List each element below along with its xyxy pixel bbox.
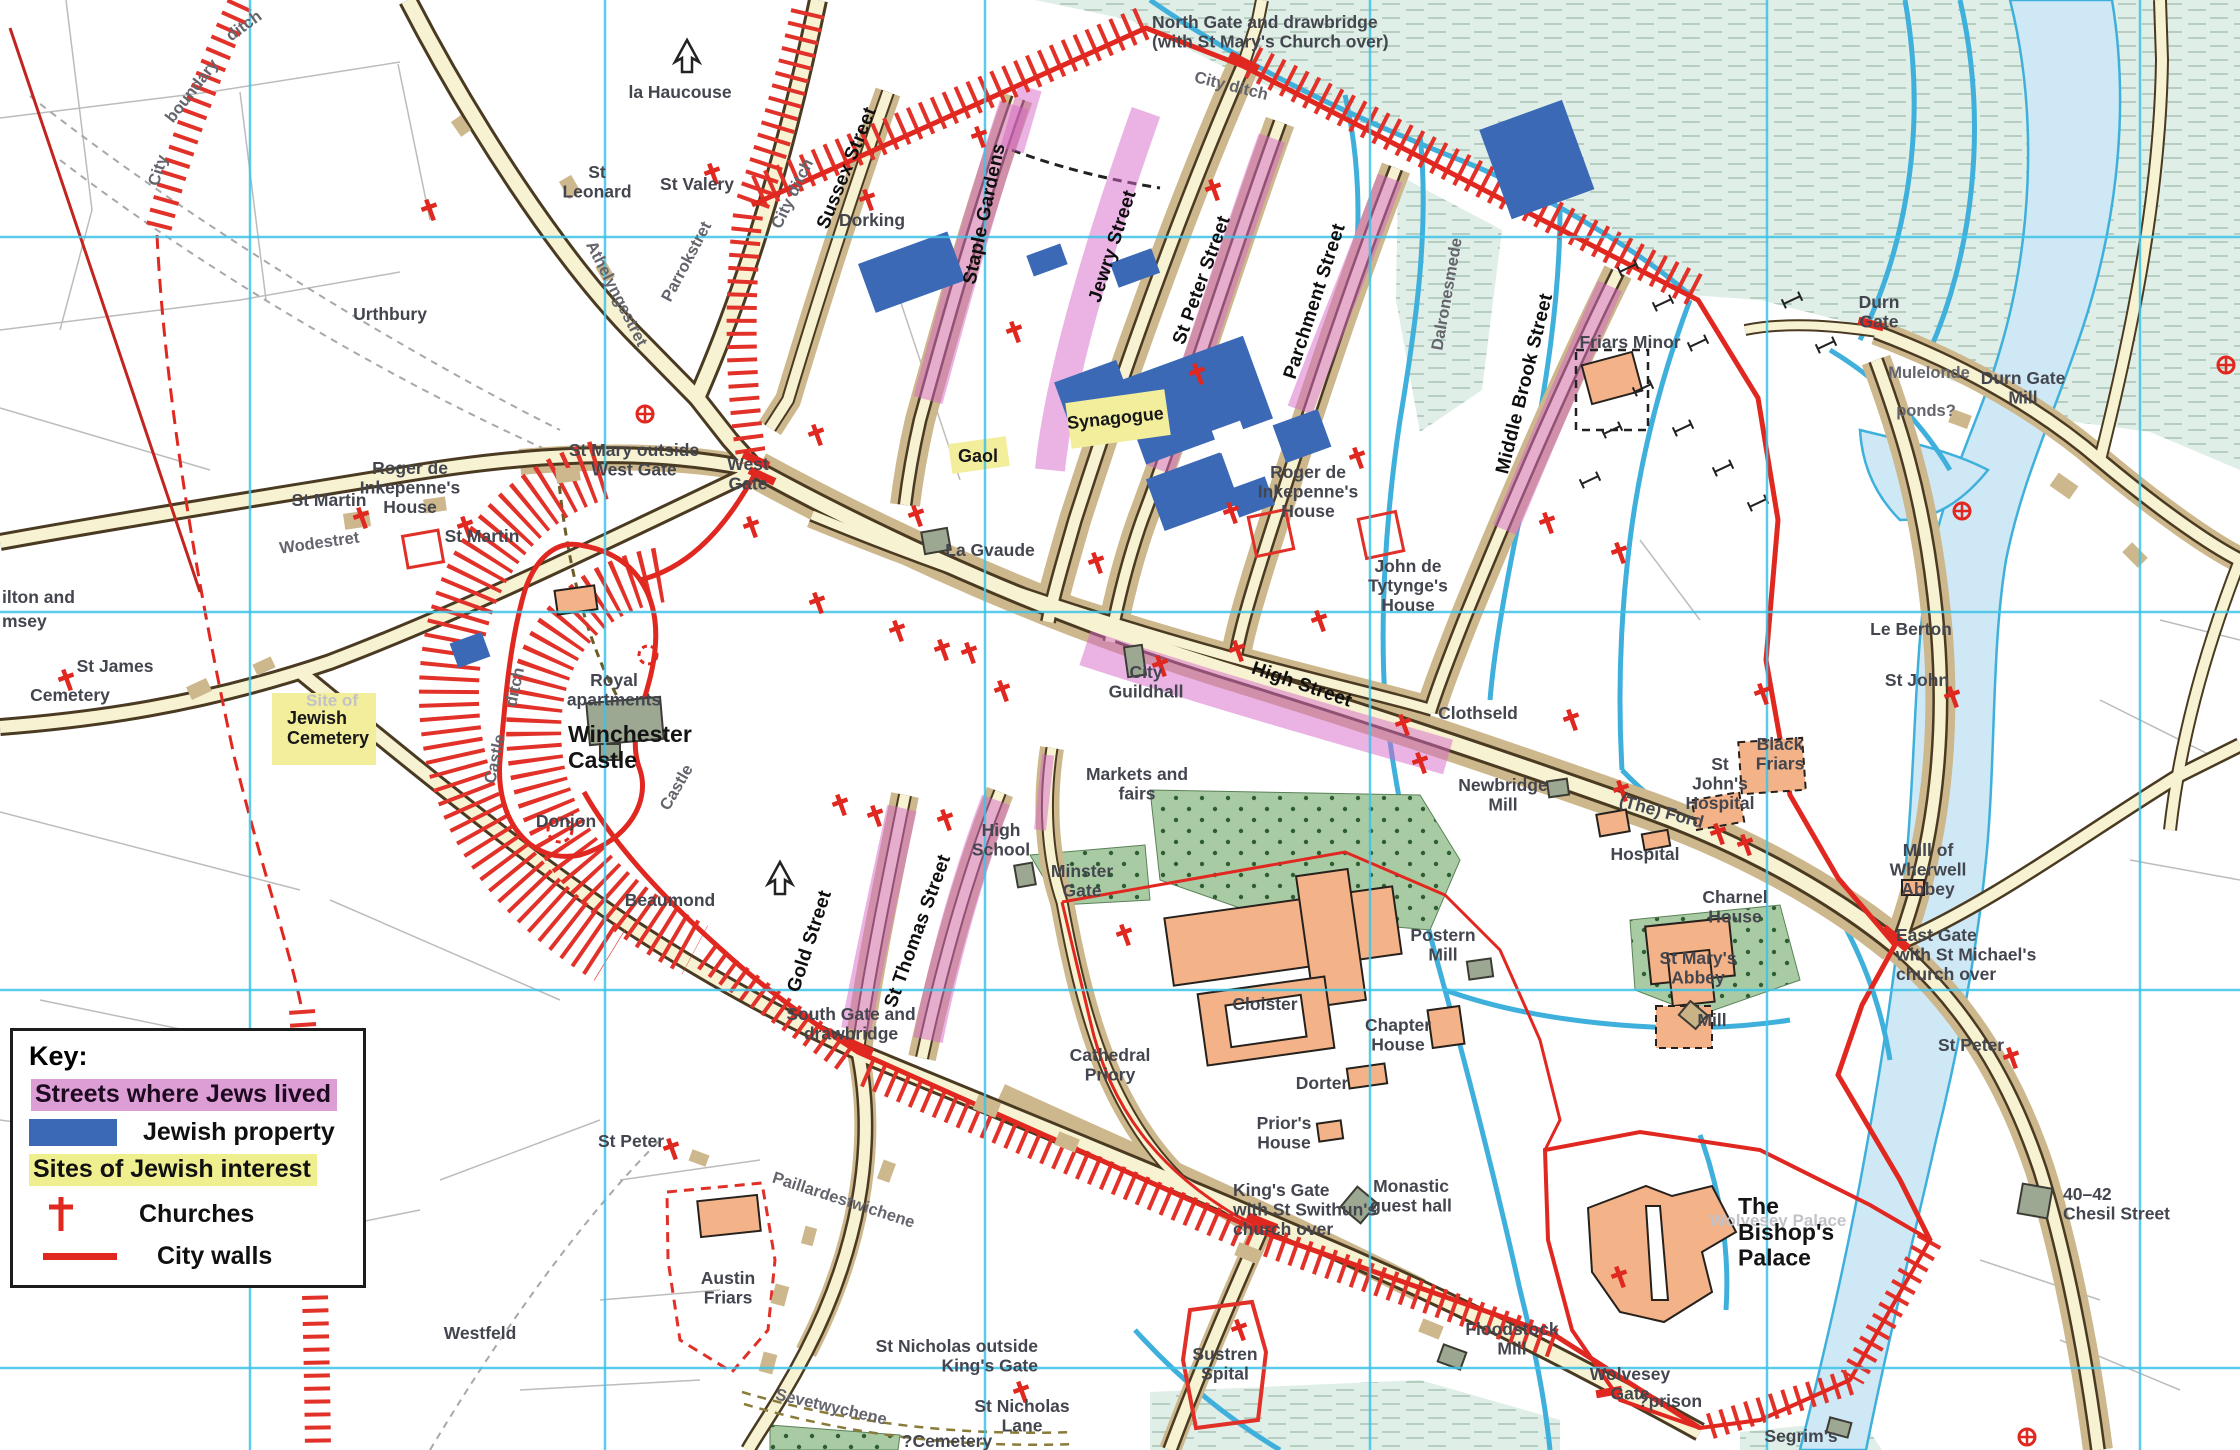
monument-icon xyxy=(768,862,792,894)
map-label: Clothseld xyxy=(1438,703,1518,723)
map-label: Prior'sHouse xyxy=(1257,1113,1312,1153)
church-cross-icon xyxy=(1086,550,1109,576)
map-label: CathedralPriory xyxy=(1070,1045,1151,1085)
map-label: St John xyxy=(1885,670,1949,690)
key-title: Key: xyxy=(29,1041,349,1072)
map-label: AustinFriars xyxy=(701,1268,755,1308)
map-label: ChapterHouse xyxy=(1365,1015,1431,1055)
map-label: Parrokstret xyxy=(658,218,715,305)
map-label: Cemetery xyxy=(30,685,110,705)
map-label: StLeonard xyxy=(562,162,631,202)
map-label: ilton and xyxy=(2,587,75,607)
city-walls-swatch xyxy=(43,1253,117,1260)
church-cross-icon xyxy=(1114,922,1137,948)
map-label: St Peter xyxy=(598,1131,664,1151)
map-label: BlackFriars xyxy=(1756,734,1805,774)
map-label: Dorking xyxy=(839,210,905,230)
map-label: Westfeld xyxy=(444,1323,517,1343)
map-label: Wodestret xyxy=(278,528,361,557)
church-cross-icon xyxy=(1561,707,1584,733)
city-walls-label: City walls xyxy=(157,1242,272,1271)
map-label: Donjon xyxy=(536,811,596,831)
church-cross-icon xyxy=(992,678,1015,704)
map-label: Royalapartments xyxy=(567,670,662,710)
church-cross-icon xyxy=(806,422,829,448)
church-cross-icon xyxy=(661,1136,684,1162)
map-label: St Valery xyxy=(660,174,734,194)
map-label: St Peter xyxy=(1938,1035,2004,1055)
map-label: ditch xyxy=(502,666,528,708)
church-cross-icon xyxy=(41,1193,87,1235)
map-label: Dorter xyxy=(1296,1073,1349,1093)
map-label: Le Berton xyxy=(1870,619,1952,639)
map-label: ?prison xyxy=(1638,1391,1702,1411)
map-label: Mill xyxy=(1697,1010,1726,1030)
key-item-jews-streets: Streets where Jews lived xyxy=(29,1079,349,1111)
map-label: Hospital xyxy=(1610,844,1679,864)
map-label: Gold Street xyxy=(783,887,836,994)
church-circle-icon xyxy=(2218,357,2234,373)
map-label: CharnelHouse xyxy=(1702,887,1767,927)
jews-streets-swatch: Streets where Jews lived xyxy=(31,1079,337,1111)
key-item-city-walls: City walls xyxy=(29,1242,349,1271)
jewish-sites-swatch: Sites of Jewish interest xyxy=(29,1154,317,1186)
map-label: NewbridgeMill xyxy=(1458,775,1548,815)
church-circle-icon xyxy=(1954,503,1970,519)
map-label: St NicholasLane xyxy=(974,1396,1070,1436)
map-label: HighSchool xyxy=(972,820,1030,860)
monument-icon xyxy=(675,40,699,72)
church-cross-icon xyxy=(887,618,910,644)
key-item-jewish-sites: Sites of Jewish interest xyxy=(29,1154,349,1186)
map-label: la Haucouse xyxy=(628,82,731,102)
map-label: DurnGate xyxy=(1859,292,1900,332)
map-label: City xyxy=(145,152,172,188)
jewish-property-label: Jewish property xyxy=(143,1118,335,1147)
map-label: Friars Minor xyxy=(1579,332,1680,352)
jewish-property-swatch xyxy=(29,1119,117,1146)
map-label: msey xyxy=(2,611,47,631)
church-cross-icon xyxy=(959,640,982,666)
map-label: St Martin xyxy=(292,490,367,510)
church-cross-icon xyxy=(1347,445,1370,471)
church-circle-icon xyxy=(2019,1429,2035,1445)
jewish-sites-boxes xyxy=(272,389,1171,765)
map-label: Castle xyxy=(656,762,696,814)
map-key: Key: Streets where Jews lived Jewish pro… xyxy=(10,1028,366,1288)
map-label: Monasticguest hall xyxy=(1370,1176,1452,1216)
map-label: Mulelonde xyxy=(1888,364,1970,382)
map-label: Beaumond xyxy=(625,890,715,910)
map-label: boundary xyxy=(162,55,223,126)
church-cross-icon xyxy=(1537,510,1560,536)
map-label: South Gate anddrawbridge xyxy=(786,1004,915,1044)
map-label: St Nicholas outsideKing's Gate xyxy=(876,1336,1039,1376)
map-label: John deTytynge'sHouse xyxy=(1368,556,1448,615)
map-label: Castle xyxy=(481,733,509,785)
map-label: Segrim's xyxy=(1764,1426,1837,1446)
map-label: St Martin xyxy=(445,526,520,546)
map-label: PosternMill xyxy=(1410,925,1475,965)
key-item-churches: Churches xyxy=(29,1193,349,1235)
map-label: Cloister xyxy=(1232,994,1297,1014)
map-label: SustrenSpital xyxy=(1192,1344,1257,1384)
map-label: East Gatewith St Michael'schurch over xyxy=(1895,925,2037,984)
church-cross-icon xyxy=(935,807,958,833)
church-cross-icon xyxy=(906,503,929,529)
map-label: ?Cemetery xyxy=(902,1431,993,1450)
map-label: St James xyxy=(77,656,154,676)
map-label: ditch xyxy=(223,7,265,45)
map-label: Gaol xyxy=(958,446,998,466)
map-label: 40–42Chesil Street xyxy=(2063,1184,2170,1224)
church-cross-icon xyxy=(830,792,853,818)
map-label: Urthbury xyxy=(353,304,427,324)
map-label: WestGate xyxy=(727,454,769,494)
map-label: La Gvaude xyxy=(945,540,1035,560)
church-cross-icon xyxy=(741,514,764,540)
church-cross-icon xyxy=(1004,319,1027,345)
map-stage: Cityboundaryditchla HaucouseStLeonardSt … xyxy=(0,0,2240,1450)
key-item-jewish-property: Jewish property xyxy=(29,1118,349,1147)
map-label: Sevetwychene xyxy=(774,1386,889,1429)
map-label: ponds? xyxy=(1896,402,1956,420)
church-circle-icon xyxy=(637,406,653,422)
map-label: WinchesterCastle xyxy=(568,721,692,773)
map-label: North Gate and drawbridge(with St Mary's… xyxy=(1152,12,1389,52)
churches-label: Churches xyxy=(139,1200,254,1229)
map-label: TheBishop'sPalace xyxy=(1738,1193,1834,1271)
church-cross-icon xyxy=(932,637,955,663)
map-label: St Mary outsideWest Gate xyxy=(569,440,700,480)
